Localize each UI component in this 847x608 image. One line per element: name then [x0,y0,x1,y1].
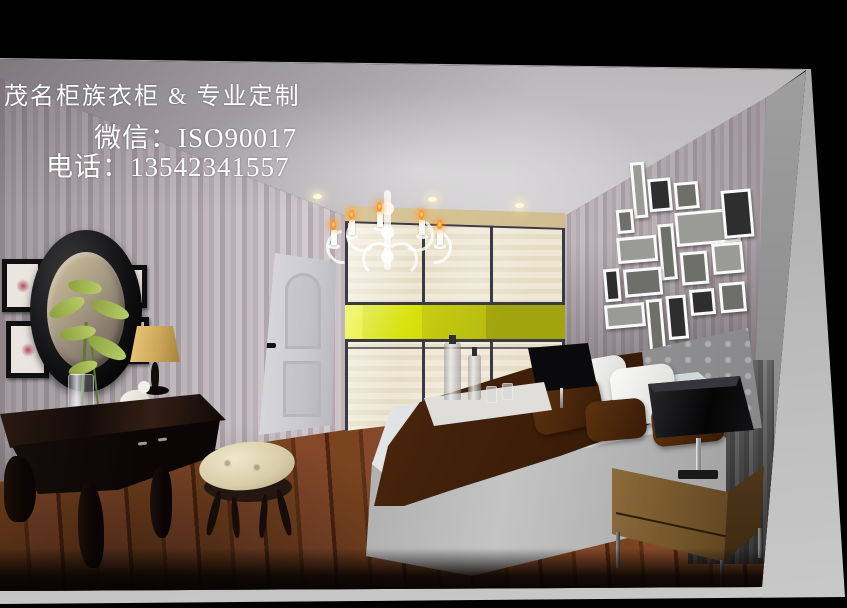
left-black-lamp-stem [560,388,563,408]
black-lamp-stem [696,438,701,472]
chandelier-candle [349,220,355,235]
wardrobe-band-top-line [345,302,565,305]
floor-shadow-band [0,548,790,594]
bird-figurine-head [138,381,150,393]
gallery-frame [604,302,646,329]
dresser-leg [150,466,172,538]
candle-flame [349,210,354,219]
stool-leg [230,496,241,538]
overlay-title-text: 茂名柜族衣柜 & 专业定制 [4,85,301,109]
candle-flame [377,202,382,211]
bottle [444,342,461,400]
gallery-frame [623,266,663,297]
black-lamp-base [678,470,718,479]
gallery-frame [720,188,754,238]
gallery-frame [616,209,635,234]
black-table-lamp [638,376,760,488]
overlay-phone-text: 电话：13542341557 [46,154,290,181]
bottle [468,354,481,400]
tufted-stool [196,438,300,542]
gallery-frame [680,250,710,285]
gallery-frame [719,281,748,313]
chandelier [318,186,464,298]
wardrobe-band-sheen [345,305,565,339]
overlay-wechat-text: 微信：ISO90017 [94,125,297,152]
dressing-table [0,394,228,570]
tan-lamp-shade [130,326,180,362]
promo-image-canvas: 茂名柜族衣柜 & 专业定制 微信：ISO90017 电话：13542341557 [0,0,847,608]
door-lower-panel [283,361,321,417]
chandelier-candle [331,230,337,245]
drinking-glass [486,386,497,403]
gallery-frame [603,268,622,302]
ceiling-spotlight [515,203,524,208]
gallery-frame [665,294,689,340]
gallery-frame [689,288,716,316]
chandelier-candle [437,230,443,245]
gallery-wall [585,142,793,370]
gallery-frame [616,235,658,264]
gallery-frame [711,241,745,275]
door-arch-panel [285,273,321,349]
chandelier-candle [419,220,425,235]
candle-flame [331,220,336,229]
stool-leg [205,490,224,537]
gallery-frame [647,177,673,212]
gallery-frame [674,181,700,210]
drinking-glass [502,383,513,400]
chandelier-candle [377,212,383,227]
candle-flame [419,210,424,219]
candle-flame [437,220,442,229]
